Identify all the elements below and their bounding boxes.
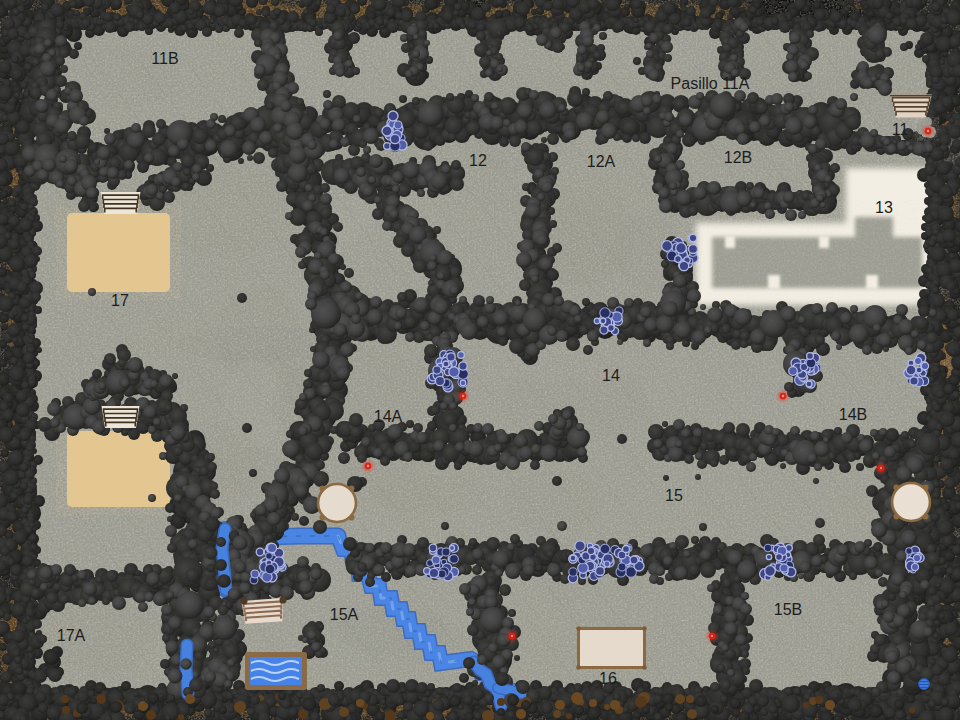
svg-text:17: 17 <box>111 292 129 309</box>
svg-text:13: 13 <box>875 199 893 216</box>
svg-text:11B: 11B <box>151 50 178 67</box>
svg-text:12A: 12A <box>587 153 616 170</box>
svg-text:15: 15 <box>665 487 683 504</box>
svg-text:17A: 17A <box>57 627 86 644</box>
svg-text:14A: 14A <box>374 408 403 425</box>
svg-text:11: 11 <box>892 121 909 138</box>
svg-text:16: 16 <box>599 670 617 687</box>
svg-text:14: 14 <box>602 367 620 384</box>
svg-text:12B: 12B <box>724 149 752 166</box>
svg-text:14B: 14B <box>839 406 867 423</box>
svg-text:15B: 15B <box>774 601 802 618</box>
svg-text:12: 12 <box>469 152 487 169</box>
svg-text:Pasillo 11A: Pasillo 11A <box>671 75 750 92</box>
svg-text:15A: 15A <box>330 606 359 623</box>
